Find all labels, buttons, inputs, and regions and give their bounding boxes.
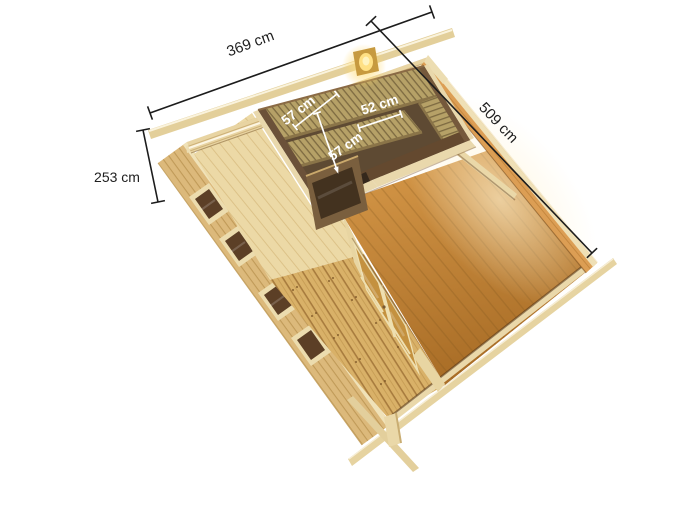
lamp-core [363,57,370,66]
cabin-topview-diagram: 57 cm 52 cm 57 cm 369 cm 509 cm 253 cm [0,0,700,525]
wall-height-label: 253 cm [94,169,140,185]
product-image: 57 cm 52 cm 57 cm 369 cm 509 cm 253 cm [0,0,700,525]
sauna-light [342,44,386,88]
door-handle [382,305,385,308]
